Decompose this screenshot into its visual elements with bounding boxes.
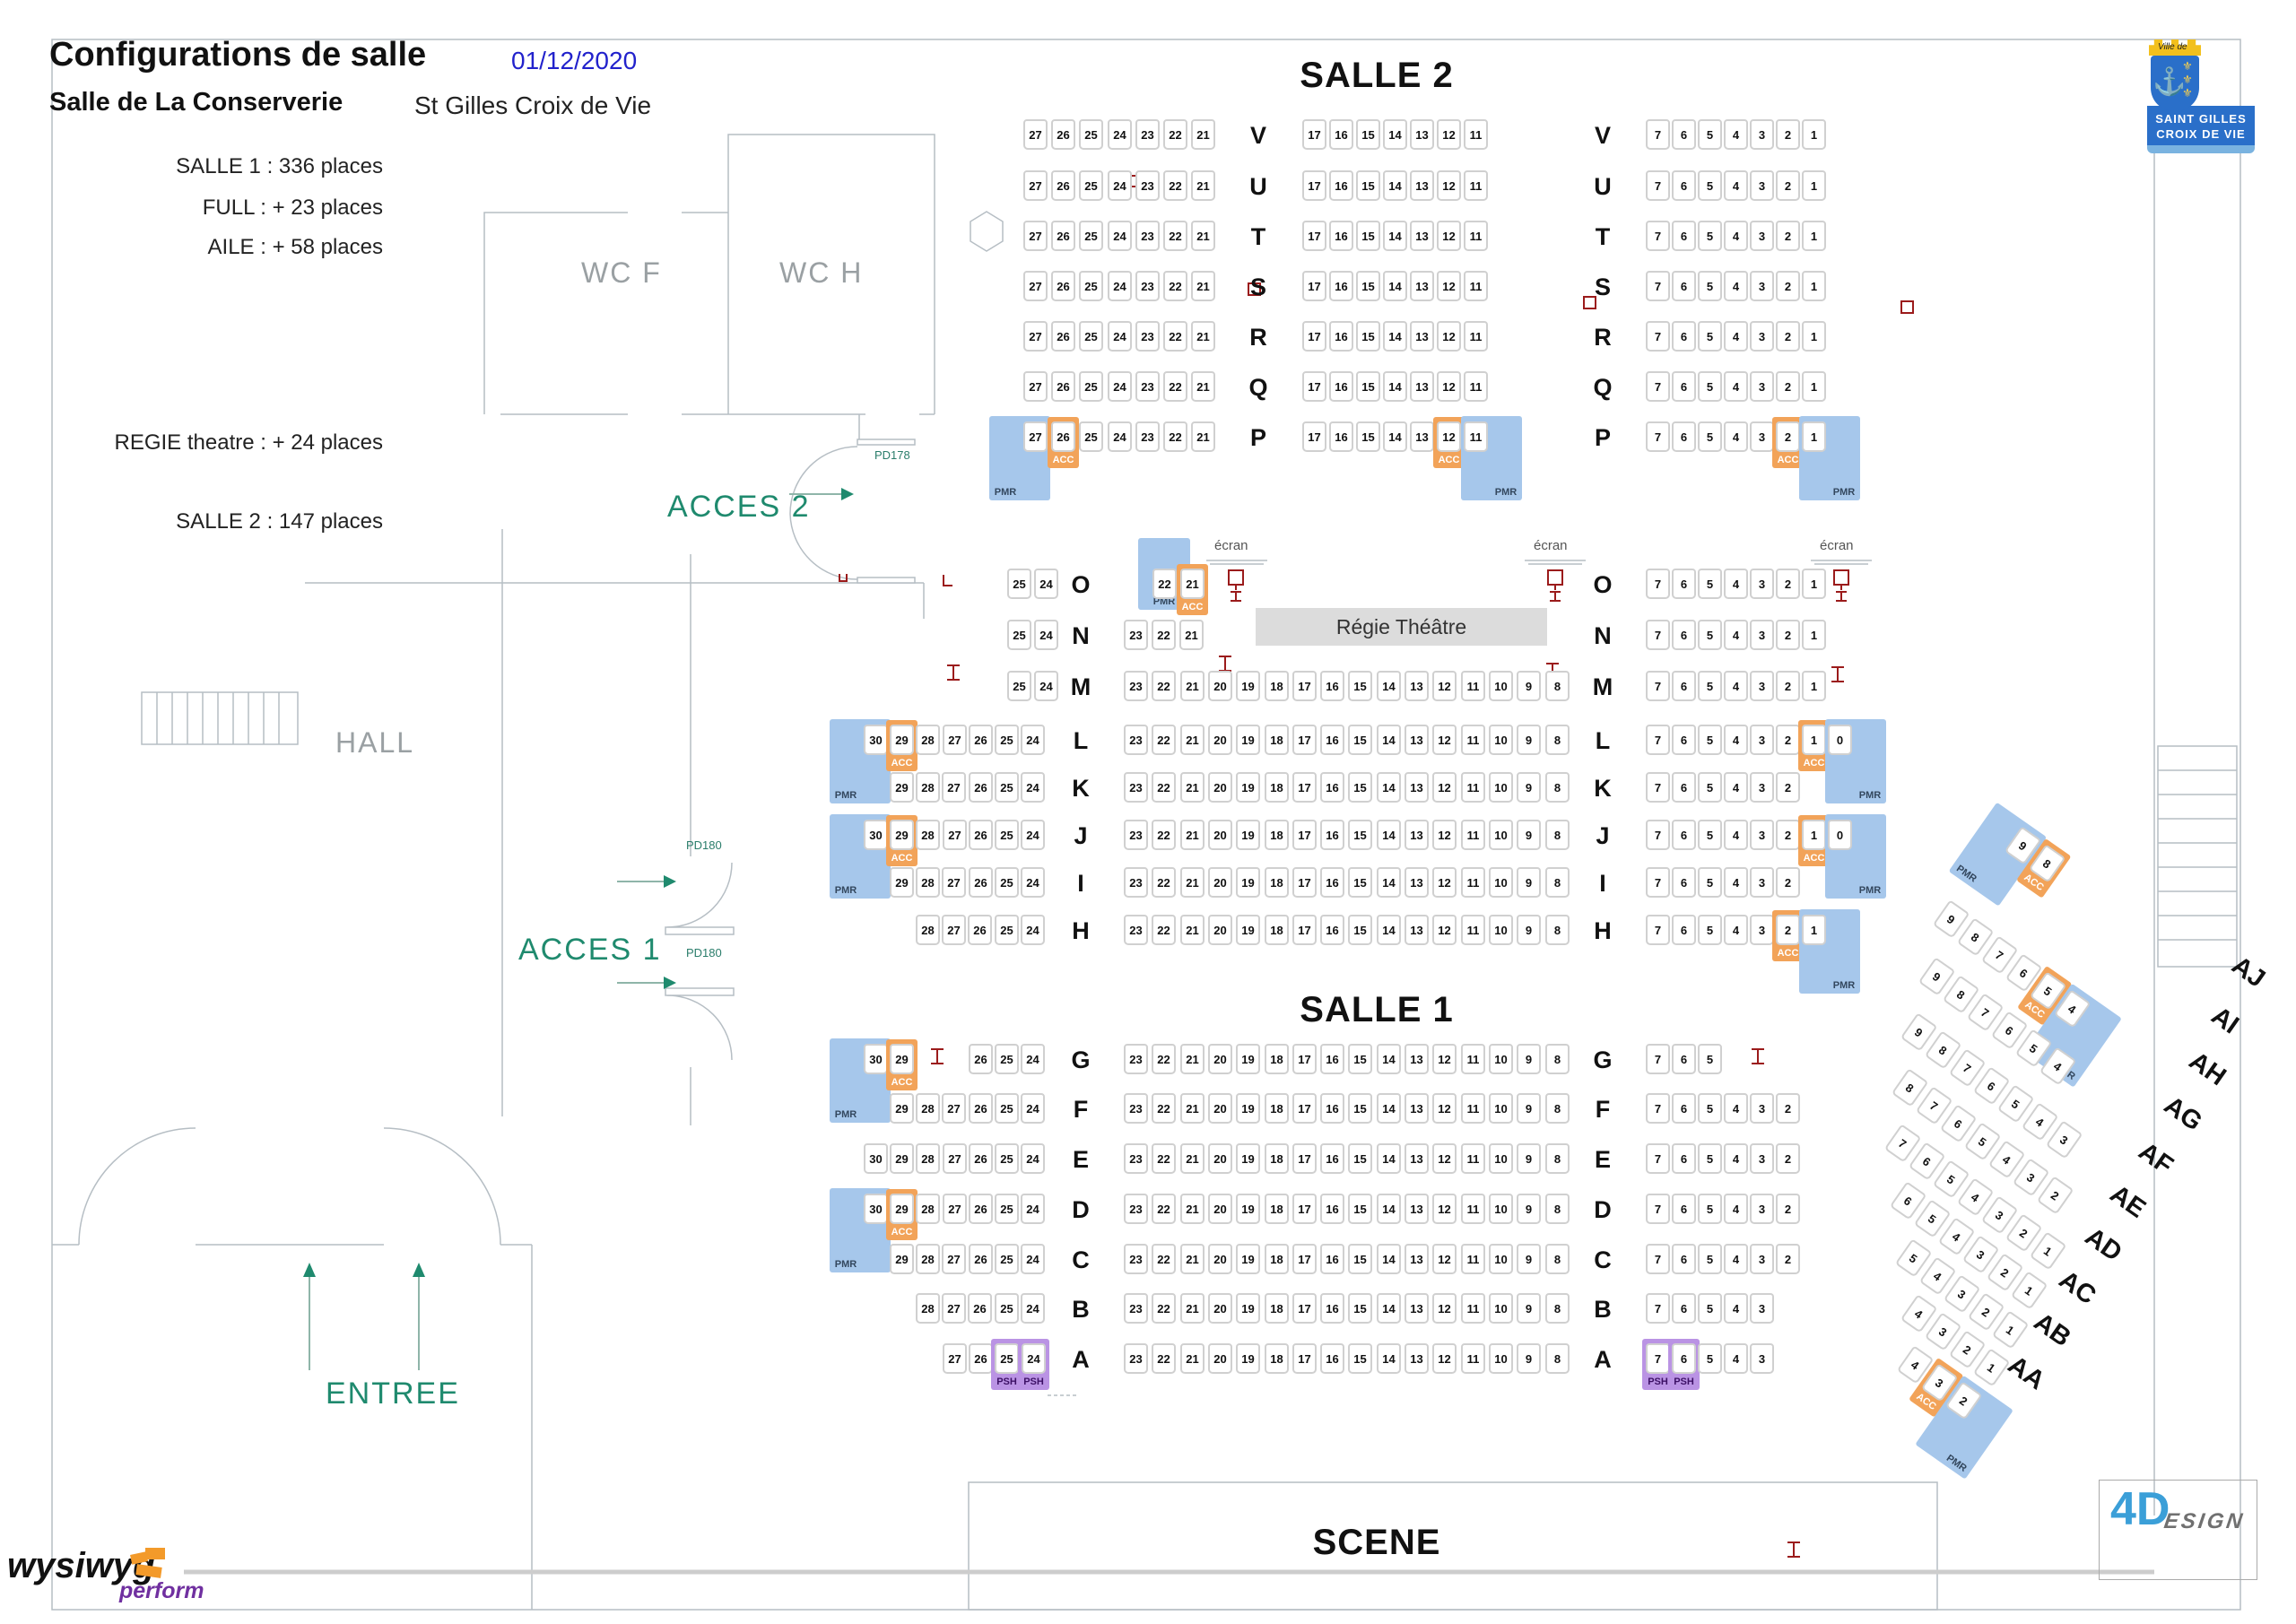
- seat[interactable]: 3: [1750, 915, 1774, 945]
- seat[interactable]: 6: [1672, 321, 1696, 352]
- seat[interactable]: 7: [1646, 421, 1670, 452]
- seat[interactable]: 4: [1724, 820, 1748, 850]
- seat[interactable]: 7: [1646, 1093, 1670, 1124]
- seat[interactable]: 17: [1302, 221, 1326, 251]
- seat[interactable]: 14: [1377, 725, 1401, 755]
- seat[interactable]: 11: [1464, 371, 1488, 402]
- seat[interactable]: 15: [1356, 170, 1380, 201]
- seat[interactable]: 3: [1750, 170, 1774, 201]
- seat[interactable]: 5: [1698, 271, 1722, 301]
- seat[interactable]: 22: [1152, 1044, 1176, 1074]
- seat[interactable]: 15: [1348, 820, 1372, 850]
- seat[interactable]: 3: [1750, 1093, 1774, 1124]
- seat[interactable]: 26: [969, 820, 993, 850]
- seat[interactable]: 14: [1377, 1244, 1401, 1274]
- seat[interactable]: 5: [1698, 569, 1722, 599]
- seat[interactable]: 10: [1489, 671, 1513, 701]
- seat[interactable]: 17: [1302, 421, 1326, 452]
- seat[interactable]: 23: [1124, 620, 1148, 650]
- seat[interactable]: 17: [1302, 170, 1326, 201]
- seat[interactable]: 5: [1698, 915, 1722, 945]
- seat-acc[interactable]: ACC12: [1437, 421, 1461, 452]
- seat[interactable]: 14: [1377, 671, 1401, 701]
- seat[interactable]: 3: [1750, 271, 1774, 301]
- seat[interactable]: 28: [916, 867, 940, 898]
- seat[interactable]: 24: [1108, 371, 1132, 402]
- seat[interactable]: 27: [943, 725, 967, 755]
- seat[interactable]: 12: [1432, 1143, 1457, 1174]
- seat[interactable]: 23: [1124, 1044, 1148, 1074]
- seat[interactable]: 1: [1802, 271, 1826, 301]
- seat[interactable]: 9: [1517, 725, 1541, 755]
- seat[interactable]: 20: [1208, 1244, 1232, 1274]
- seat[interactable]: 11: [1461, 1293, 1485, 1324]
- seat[interactable]: 15: [1356, 271, 1380, 301]
- seat[interactable]: 6: [1672, 1143, 1696, 1174]
- seat[interactable]: 17: [1292, 820, 1317, 850]
- seat[interactable]: 25: [995, 1293, 1019, 1324]
- seat[interactable]: 26: [1051, 371, 1075, 402]
- seat[interactable]: 15: [1356, 321, 1380, 352]
- seat[interactable]: 15: [1356, 221, 1380, 251]
- seat[interactable]: 20: [1208, 1093, 1232, 1124]
- seat[interactable]: 25: [995, 867, 1019, 898]
- seat[interactable]: 12: [1437, 221, 1461, 251]
- seat-pmr[interactable]: PMR30: [864, 820, 888, 850]
- seat[interactable]: 15: [1356, 371, 1380, 402]
- seat[interactable]: 25: [1079, 371, 1103, 402]
- seat-psh[interactable]: PSH7: [1646, 1343, 1670, 1374]
- seat-acc[interactable]: ACC26: [1051, 421, 1075, 452]
- seat[interactable]: 11: [1464, 119, 1488, 150]
- seat[interactable]: 15: [1348, 1244, 1372, 1274]
- seat[interactable]: 3: [1750, 371, 1774, 402]
- seat[interactable]: 16: [1329, 170, 1353, 201]
- seat[interactable]: 15: [1348, 1044, 1372, 1074]
- seat[interactable]: 14: [1377, 1194, 1401, 1224]
- seat[interactable]: 4: [1724, 371, 1748, 402]
- seat[interactable]: 16: [1320, 1194, 1344, 1224]
- seat[interactable]: 6: [1672, 371, 1696, 402]
- seat[interactable]: 25: [995, 1044, 1019, 1074]
- seat[interactable]: 22: [1163, 119, 1187, 150]
- seat[interactable]: 8: [1545, 1293, 1570, 1324]
- seat[interactable]: 9: [1517, 820, 1541, 850]
- seat[interactable]: 21: [1180, 1044, 1205, 1074]
- seat[interactable]: 16: [1329, 221, 1353, 251]
- seat[interactable]: 25: [1079, 221, 1103, 251]
- seat[interactable]: 18: [1265, 1044, 1289, 1074]
- seat[interactable]: 18: [1265, 1343, 1289, 1374]
- seat[interactable]: 20: [1208, 725, 1232, 755]
- seat[interactable]: 18: [1265, 867, 1289, 898]
- seat[interactable]: 16: [1320, 1244, 1344, 1274]
- seat[interactable]: 17: [1302, 371, 1326, 402]
- seat[interactable]: 3: [1750, 221, 1774, 251]
- seat[interactable]: 18: [1265, 1194, 1289, 1224]
- seat[interactable]: 24: [1021, 1044, 1045, 1074]
- seat[interactable]: 14: [1377, 1143, 1401, 1174]
- seat[interactable]: 19: [1236, 725, 1260, 755]
- seat[interactable]: 22: [1152, 1343, 1176, 1374]
- seat[interactable]: 18: [1265, 1293, 1289, 1324]
- seat[interactable]: 23: [1135, 119, 1160, 150]
- seat[interactable]: 29: [890, 1093, 914, 1124]
- seat[interactable]: 26: [969, 1244, 993, 1274]
- seat[interactable]: 23: [1124, 820, 1148, 850]
- seat[interactable]: 27: [942, 1293, 966, 1324]
- seat[interactable]: 13: [1405, 867, 1429, 898]
- seat[interactable]: 12: [1437, 371, 1461, 402]
- seat[interactable]: 27: [942, 1244, 966, 1274]
- seat[interactable]: 18: [1265, 671, 1289, 701]
- seat[interactable]: 21: [1180, 1343, 1205, 1374]
- seat[interactable]: 28: [916, 772, 940, 803]
- seat[interactable]: 13: [1405, 1293, 1429, 1324]
- seat[interactable]: 17: [1292, 867, 1317, 898]
- seat[interactable]: 25: [995, 915, 1019, 945]
- seat-acc[interactable]: ACC29: [890, 1044, 914, 1074]
- seat[interactable]: 26: [969, 772, 993, 803]
- seat-psh[interactable]: PSH25: [995, 1343, 1019, 1374]
- seat[interactable]: 13: [1405, 1194, 1429, 1224]
- seat[interactable]: 26: [969, 867, 993, 898]
- seat[interactable]: 9: [1517, 671, 1541, 701]
- seat[interactable]: 15: [1348, 1343, 1372, 1374]
- seat[interactable]: 2: [1776, 1093, 1800, 1124]
- seat[interactable]: 2: [1776, 221, 1800, 251]
- seat[interactable]: 17: [1292, 1194, 1317, 1224]
- seat[interactable]: 15: [1348, 772, 1372, 803]
- seat[interactable]: 23: [1124, 1143, 1148, 1174]
- seat[interactable]: 9: [1517, 1343, 1541, 1374]
- seat[interactable]: 13: [1405, 1244, 1429, 1274]
- seat[interactable]: 26: [969, 1194, 993, 1224]
- seat[interactable]: 24: [1021, 915, 1045, 945]
- seat[interactable]: 9: [1517, 772, 1541, 803]
- seat[interactable]: 7: [1646, 867, 1670, 898]
- seat[interactable]: 7: [1646, 671, 1670, 701]
- seat[interactable]: 7: [1646, 1143, 1670, 1174]
- seat[interactable]: 13: [1410, 119, 1434, 150]
- seat[interactable]: 13: [1410, 321, 1434, 352]
- seat[interactable]: 4: [1724, 1293, 1748, 1324]
- seat[interactable]: 14: [1383, 119, 1407, 150]
- seat[interactable]: 21: [1191, 421, 1215, 452]
- seat[interactable]: 23: [1124, 1343, 1148, 1374]
- seat[interactable]: 27: [1023, 119, 1048, 150]
- seat[interactable]: 23: [1135, 321, 1160, 352]
- seat[interactable]: 2: [1776, 119, 1800, 150]
- seat[interactable]: 9: [1517, 1244, 1541, 1274]
- seat[interactable]: 9: [1517, 1293, 1541, 1324]
- seat[interactable]: 4: [1724, 772, 1748, 803]
- seat[interactable]: 6: [1672, 820, 1696, 850]
- seat[interactable]: 6: [1672, 421, 1696, 452]
- seat[interactable]: 13: [1405, 1143, 1429, 1174]
- seat[interactable]: 16: [1320, 1044, 1344, 1074]
- seat[interactable]: 1: [1802, 371, 1826, 402]
- seat[interactable]: 13: [1410, 271, 1434, 301]
- seat[interactable]: 12: [1432, 867, 1457, 898]
- seat[interactable]: 15: [1356, 421, 1380, 452]
- seat[interactable]: 3: [1750, 820, 1774, 850]
- seat[interactable]: 16: [1320, 1093, 1344, 1124]
- seat[interactable]: 17: [1292, 671, 1317, 701]
- seat[interactable]: 27: [1023, 321, 1048, 352]
- seat[interactable]: 15: [1348, 867, 1372, 898]
- seat[interactable]: 20: [1208, 867, 1232, 898]
- seat[interactable]: 2: [1776, 671, 1800, 701]
- seat[interactable]: 3: [1750, 725, 1774, 755]
- seat[interactable]: 27: [1023, 271, 1048, 301]
- seat[interactable]: 4: [1724, 725, 1748, 755]
- seat-pmr[interactable]: PMR30: [864, 1194, 888, 1224]
- seat[interactable]: 3: [1750, 1343, 1774, 1374]
- seat[interactable]: 13: [1405, 820, 1429, 850]
- seat[interactable]: 1: [1802, 671, 1826, 701]
- seat-pmr[interactable]: PMR1: [1802, 915, 1826, 945]
- seat[interactable]: 22: [1152, 725, 1176, 755]
- seat[interactable]: 5: [1698, 421, 1722, 452]
- seat[interactable]: 3: [1750, 119, 1774, 150]
- seat[interactable]: 28: [916, 820, 940, 850]
- seat[interactable]: 26: [1051, 271, 1075, 301]
- seat[interactable]: 5: [1698, 1143, 1722, 1174]
- seat[interactable]: 12: [1437, 321, 1461, 352]
- seat[interactable]: 11: [1461, 1194, 1485, 1224]
- seat[interactable]: 7: [1646, 271, 1670, 301]
- seat[interactable]: 2: [1776, 820, 1800, 850]
- seat-pmr[interactable]: PMR27: [1023, 421, 1048, 452]
- seat[interactable]: 23: [1124, 1244, 1148, 1274]
- seat[interactable]: 11: [1464, 321, 1488, 352]
- seat[interactable]: 24: [1108, 321, 1132, 352]
- seat[interactable]: 23: [1135, 221, 1160, 251]
- seat[interactable]: 2: [1776, 321, 1800, 352]
- seat[interactable]: 26: [1051, 321, 1075, 352]
- seat[interactable]: 25: [1007, 569, 1031, 599]
- seat[interactable]: 10: [1489, 1044, 1513, 1074]
- seat[interactable]: 21: [1180, 1244, 1205, 1274]
- seat[interactable]: 18: [1265, 1244, 1289, 1274]
- seat[interactable]: 14: [1377, 867, 1401, 898]
- seat[interactable]: 1: [1802, 221, 1826, 251]
- seat[interactable]: 27: [942, 772, 966, 803]
- seat[interactable]: 6: [1672, 1293, 1696, 1324]
- seat[interactable]: 10: [1489, 1143, 1513, 1174]
- seat[interactable]: 5: [1698, 1194, 1722, 1224]
- seat[interactable]: 23: [1124, 1194, 1148, 1224]
- seat[interactable]: 3: [1750, 1293, 1774, 1324]
- seat[interactable]: 11: [1461, 1044, 1485, 1074]
- seat[interactable]: 22: [1152, 1194, 1176, 1224]
- seat[interactable]: 21: [1191, 221, 1215, 251]
- seat[interactable]: 22: [1152, 820, 1176, 850]
- seat[interactable]: 21: [1180, 1194, 1205, 1224]
- seat[interactable]: 2: [1776, 620, 1800, 650]
- seat[interactable]: 7: [1646, 915, 1670, 945]
- seat[interactable]: 14: [1383, 221, 1407, 251]
- seat[interactable]: 10: [1489, 820, 1513, 850]
- seat[interactable]: 3: [1750, 1244, 1774, 1274]
- seat[interactable]: 2: [1776, 772, 1800, 803]
- seat-acc[interactable]: ACC29: [890, 725, 914, 755]
- seat[interactable]: 20: [1208, 1343, 1232, 1374]
- seat[interactable]: 8: [1545, 1143, 1570, 1174]
- seat[interactable]: 5: [1698, 119, 1722, 150]
- seat[interactable]: 5: [1698, 170, 1722, 201]
- seat[interactable]: 7: [1646, 119, 1670, 150]
- seat[interactable]: 10: [1489, 1093, 1513, 1124]
- seat[interactable]: 7: [1646, 221, 1670, 251]
- seat[interactable]: 26: [969, 1343, 993, 1374]
- seat[interactable]: 8: [1545, 820, 1570, 850]
- seat-psh[interactable]: PSH6: [1672, 1343, 1696, 1374]
- seat[interactable]: 23: [1135, 371, 1160, 402]
- seat[interactable]: 12: [1432, 1244, 1457, 1274]
- seat[interactable]: 7: [1646, 170, 1670, 201]
- seat[interactable]: 14: [1377, 915, 1401, 945]
- seat[interactable]: 6: [1672, 620, 1696, 650]
- seat[interactable]: 4: [1724, 221, 1748, 251]
- seat[interactable]: 9: [1517, 1143, 1541, 1174]
- seat[interactable]: 13: [1405, 1093, 1429, 1124]
- seat[interactable]: 23: [1124, 1293, 1148, 1324]
- seat[interactable]: 21: [1180, 867, 1205, 898]
- seat[interactable]: 20: [1208, 1044, 1232, 1074]
- seat[interactable]: 19: [1236, 772, 1260, 803]
- seat[interactable]: 6: [1672, 867, 1696, 898]
- seat[interactable]: 10: [1489, 1293, 1513, 1324]
- seat[interactable]: 26: [1051, 221, 1075, 251]
- seat[interactable]: 23: [1124, 772, 1148, 803]
- seat[interactable]: 3: [1750, 1194, 1774, 1224]
- seat[interactable]: 24: [1108, 221, 1132, 251]
- seat[interactable]: 25: [1007, 620, 1031, 650]
- seat[interactable]: 12: [1432, 671, 1457, 701]
- seat[interactable]: 10: [1489, 1343, 1513, 1374]
- seat[interactable]: 11: [1461, 671, 1485, 701]
- seat[interactable]: 25: [995, 1143, 1019, 1174]
- seat[interactable]: 18: [1265, 772, 1289, 803]
- seat[interactable]: 11: [1464, 221, 1488, 251]
- seat[interactable]: 25: [1079, 321, 1103, 352]
- seat[interactable]: 17: [1292, 1343, 1317, 1374]
- seat[interactable]: 13: [1405, 1343, 1429, 1374]
- seat[interactable]: 4: [1724, 321, 1748, 352]
- seat[interactable]: 7: [1646, 725, 1670, 755]
- seat[interactable]: 16: [1320, 867, 1344, 898]
- seat[interactable]: 2: [1776, 1143, 1800, 1174]
- seat[interactable]: 17: [1302, 271, 1326, 301]
- seat[interactable]: 13: [1405, 772, 1429, 803]
- seat[interactable]: 15: [1348, 1293, 1372, 1324]
- seat[interactable]: 2: [1776, 371, 1800, 402]
- seat[interactable]: 11: [1461, 915, 1485, 945]
- seat[interactable]: 10: [1489, 1194, 1513, 1224]
- seat[interactable]: 27: [1023, 221, 1048, 251]
- seat[interactable]: 21: [1191, 119, 1215, 150]
- seat[interactable]: 25: [1079, 170, 1103, 201]
- seat[interactable]: 12: [1432, 725, 1457, 755]
- seat[interactable]: 27: [942, 867, 966, 898]
- seat[interactable]: 3: [1750, 620, 1774, 650]
- seat[interactable]: 23: [1124, 725, 1148, 755]
- seat[interactable]: 24: [1021, 1143, 1045, 1174]
- seat[interactable]: 20: [1208, 772, 1232, 803]
- seat[interactable]: 28: [916, 1293, 940, 1324]
- seat[interactable]: 28: [916, 1093, 940, 1124]
- seat[interactable]: 19: [1236, 1143, 1260, 1174]
- seat[interactable]: 21: [1180, 915, 1205, 945]
- seat[interactable]: 27: [1023, 371, 1048, 402]
- seat[interactable]: 2: [1776, 1244, 1800, 1274]
- seat[interactable]: 4: [1724, 671, 1748, 701]
- seat[interactable]: 12: [1432, 915, 1457, 945]
- seat[interactable]: 4: [1724, 421, 1748, 452]
- seat[interactable]: 4: [1724, 1343, 1748, 1374]
- seat[interactable]: 24: [1021, 867, 1045, 898]
- seat[interactable]: 26: [968, 915, 992, 945]
- seat[interactable]: 14: [1383, 271, 1407, 301]
- seat[interactable]: 12: [1437, 170, 1461, 201]
- seat[interactable]: 6: [1672, 119, 1696, 150]
- seat[interactable]: 9: [1517, 1194, 1541, 1224]
- seat[interactable]: 6: [1672, 915, 1696, 945]
- seat[interactable]: 11: [1461, 772, 1485, 803]
- seat[interactable]: 4: [1724, 620, 1748, 650]
- seat[interactable]: 14: [1377, 1343, 1401, 1374]
- seat[interactable]: 17: [1302, 119, 1326, 150]
- seat[interactable]: 3: [1750, 671, 1774, 701]
- seat[interactable]: 24: [1021, 1093, 1045, 1124]
- seat[interactable]: 24: [1021, 1293, 1045, 1324]
- seat[interactable]: 6: [1672, 271, 1696, 301]
- seat[interactable]: 5: [1698, 820, 1722, 850]
- seat[interactable]: 7: [1646, 1194, 1670, 1224]
- seat[interactable]: 16: [1329, 371, 1353, 402]
- seat[interactable]: 24: [1034, 569, 1058, 599]
- seat[interactable]: 13: [1405, 725, 1429, 755]
- seat[interactable]: 7: [1646, 569, 1670, 599]
- seat[interactable]: 24: [1021, 725, 1045, 755]
- seat[interactable]: 18: [1265, 915, 1289, 945]
- seat[interactable]: 4: [1724, 867, 1748, 898]
- seat[interactable]: 10: [1489, 725, 1513, 755]
- seat[interactable]: 22: [1163, 221, 1187, 251]
- seat[interactable]: 17: [1292, 915, 1317, 945]
- seat[interactable]: 3: [1750, 321, 1774, 352]
- seat[interactable]: 24: [1021, 772, 1045, 803]
- seat[interactable]: 7: [1646, 820, 1670, 850]
- seat[interactable]: 2: [1776, 170, 1800, 201]
- seat[interactable]: 14: [1383, 421, 1407, 452]
- seat-psh[interactable]: PSH24: [1022, 1343, 1046, 1374]
- seat[interactable]: 28: [916, 725, 940, 755]
- seat[interactable]: 23: [1124, 915, 1148, 945]
- seat[interactable]: 10: [1489, 1244, 1513, 1274]
- seat[interactable]: 8: [1545, 1044, 1570, 1074]
- seat[interactable]: 15: [1348, 1093, 1372, 1124]
- seat[interactable]: 27: [942, 1093, 966, 1124]
- seat[interactable]: 4: [1724, 1194, 1748, 1224]
- seat[interactable]: 5: [1698, 620, 1722, 650]
- seat[interactable]: 6: [1672, 725, 1696, 755]
- seat[interactable]: 5: [1698, 1343, 1722, 1374]
- seat[interactable]: 22: [1152, 671, 1176, 701]
- seat[interactable]: 25: [1007, 671, 1031, 701]
